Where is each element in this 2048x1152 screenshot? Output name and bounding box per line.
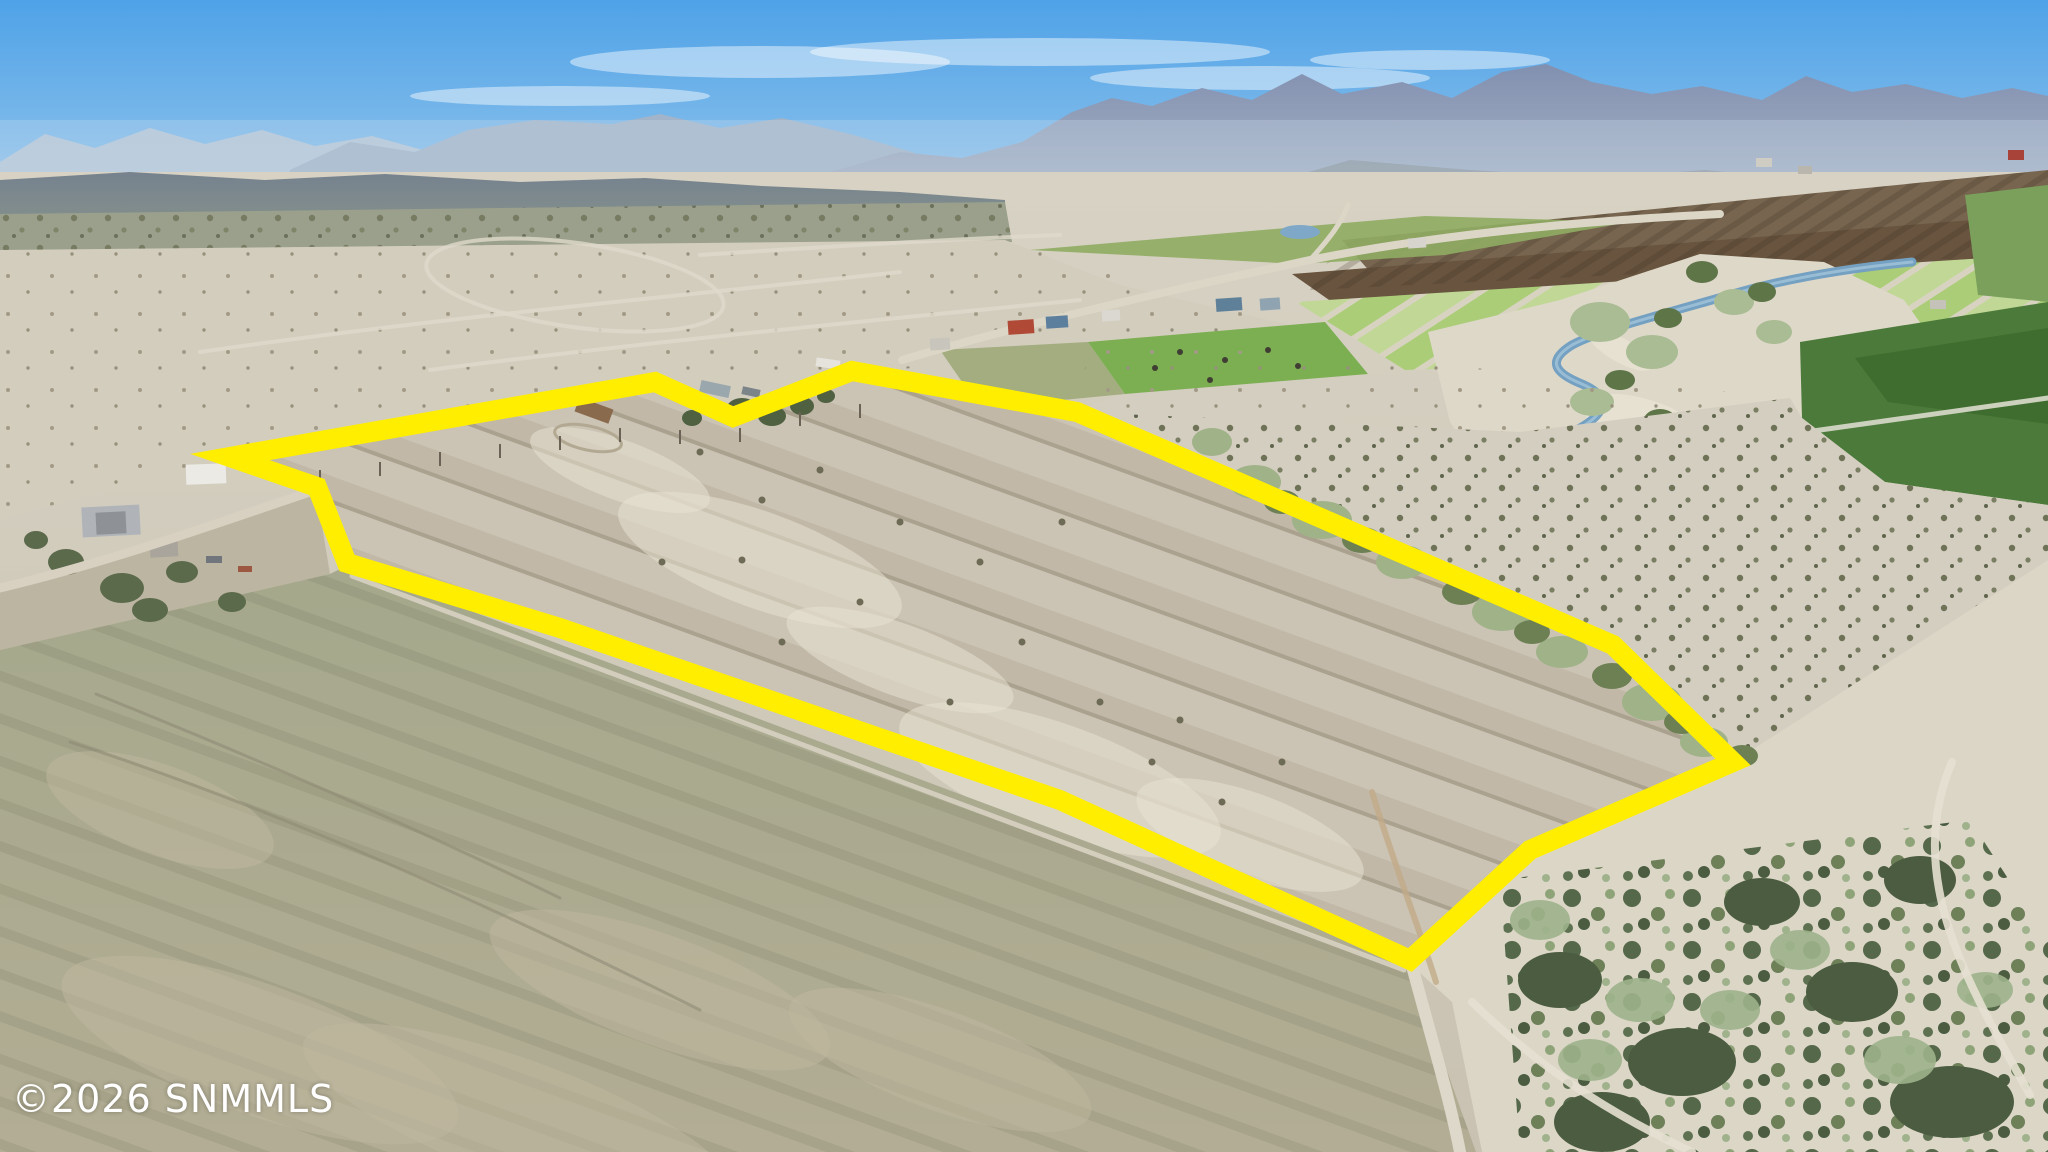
village-houses (1798, 166, 1812, 174)
farmhouse-trees (100, 573, 144, 603)
willow-trees (1626, 335, 1678, 369)
village-houses (2008, 150, 2024, 160)
riparian-sage (1606, 978, 1674, 1022)
riparian-trees-dark (1884, 856, 1956, 904)
farmhouse (95, 511, 126, 535)
riparian-sage (1770, 930, 1830, 970)
parcel-bushes (739, 557, 746, 564)
parcel-bushes (1219, 799, 1226, 806)
riparian-trees-dark (1724, 878, 1800, 926)
willow-trees-dark (1686, 261, 1718, 283)
clouds (410, 86, 710, 106)
farmhouse-trees (132, 598, 168, 622)
parcel-bushes (977, 559, 984, 566)
far-right-green-strip (1965, 185, 2048, 302)
parcel-bushes (1149, 759, 1156, 766)
riparian-sage (1864, 1036, 1936, 1084)
parcel-bushes (1019, 639, 1026, 646)
parcel-bushes (857, 599, 864, 606)
cows (1265, 347, 1271, 353)
riparian-trees-dark (1806, 962, 1898, 1022)
willow-trees (1570, 302, 1630, 342)
parcel-bushes (659, 559, 666, 566)
village-houses (1008, 319, 1035, 335)
village-houses (1102, 309, 1121, 321)
village-houses (1260, 297, 1281, 310)
willow-trees-dark (1748, 282, 1776, 302)
village-houses (930, 337, 951, 350)
riparian-sage (1558, 1039, 1622, 1081)
parcel-bushes (817, 467, 824, 474)
farmhouse-trees (166, 561, 198, 583)
village-houses (1046, 315, 1069, 329)
scene-svg (0, 0, 2048, 1152)
clouds (810, 38, 1270, 66)
village-houses (1408, 237, 1427, 248)
village-houses (1756, 158, 1772, 167)
parcel-bushes (947, 699, 954, 706)
parcel-bushes (1059, 519, 1066, 526)
aerial-property-photo: ©2026 SNMMLS (0, 0, 2048, 1152)
parcel-bushes (897, 519, 904, 526)
boundary-trees-sage (1192, 428, 1232, 456)
scene-layers (0, 0, 2048, 1152)
parcel-bushes (779, 639, 786, 646)
parcel-bushes (1279, 759, 1286, 766)
riparian-sage (1510, 900, 1570, 940)
watermark: ©2026 SNMMLS (12, 1080, 334, 1118)
willow-trees (1714, 289, 1754, 315)
farmhouse-trees (218, 592, 246, 612)
willow-trees-dark (1654, 308, 1682, 328)
parcel-bushes (759, 497, 766, 504)
parcel-bushes (1097, 699, 1104, 706)
parcel-bushes (697, 449, 704, 456)
pond (1280, 225, 1320, 239)
village-houses (1216, 297, 1243, 312)
riparian-sage (1700, 990, 1760, 1030)
parcel-bushes (1177, 717, 1184, 724)
riparian-trees-dark (1518, 952, 1602, 1008)
clouds (1090, 66, 1430, 90)
white-trailer (186, 463, 227, 484)
willow-trees (1756, 320, 1792, 344)
clouds (1310, 50, 1550, 70)
farmhouse-trees (24, 531, 48, 549)
farmhouse (206, 556, 222, 563)
farmhouse (238, 566, 252, 572)
riparian-trees-dark (1628, 1028, 1736, 1096)
village-houses (1930, 300, 1946, 309)
